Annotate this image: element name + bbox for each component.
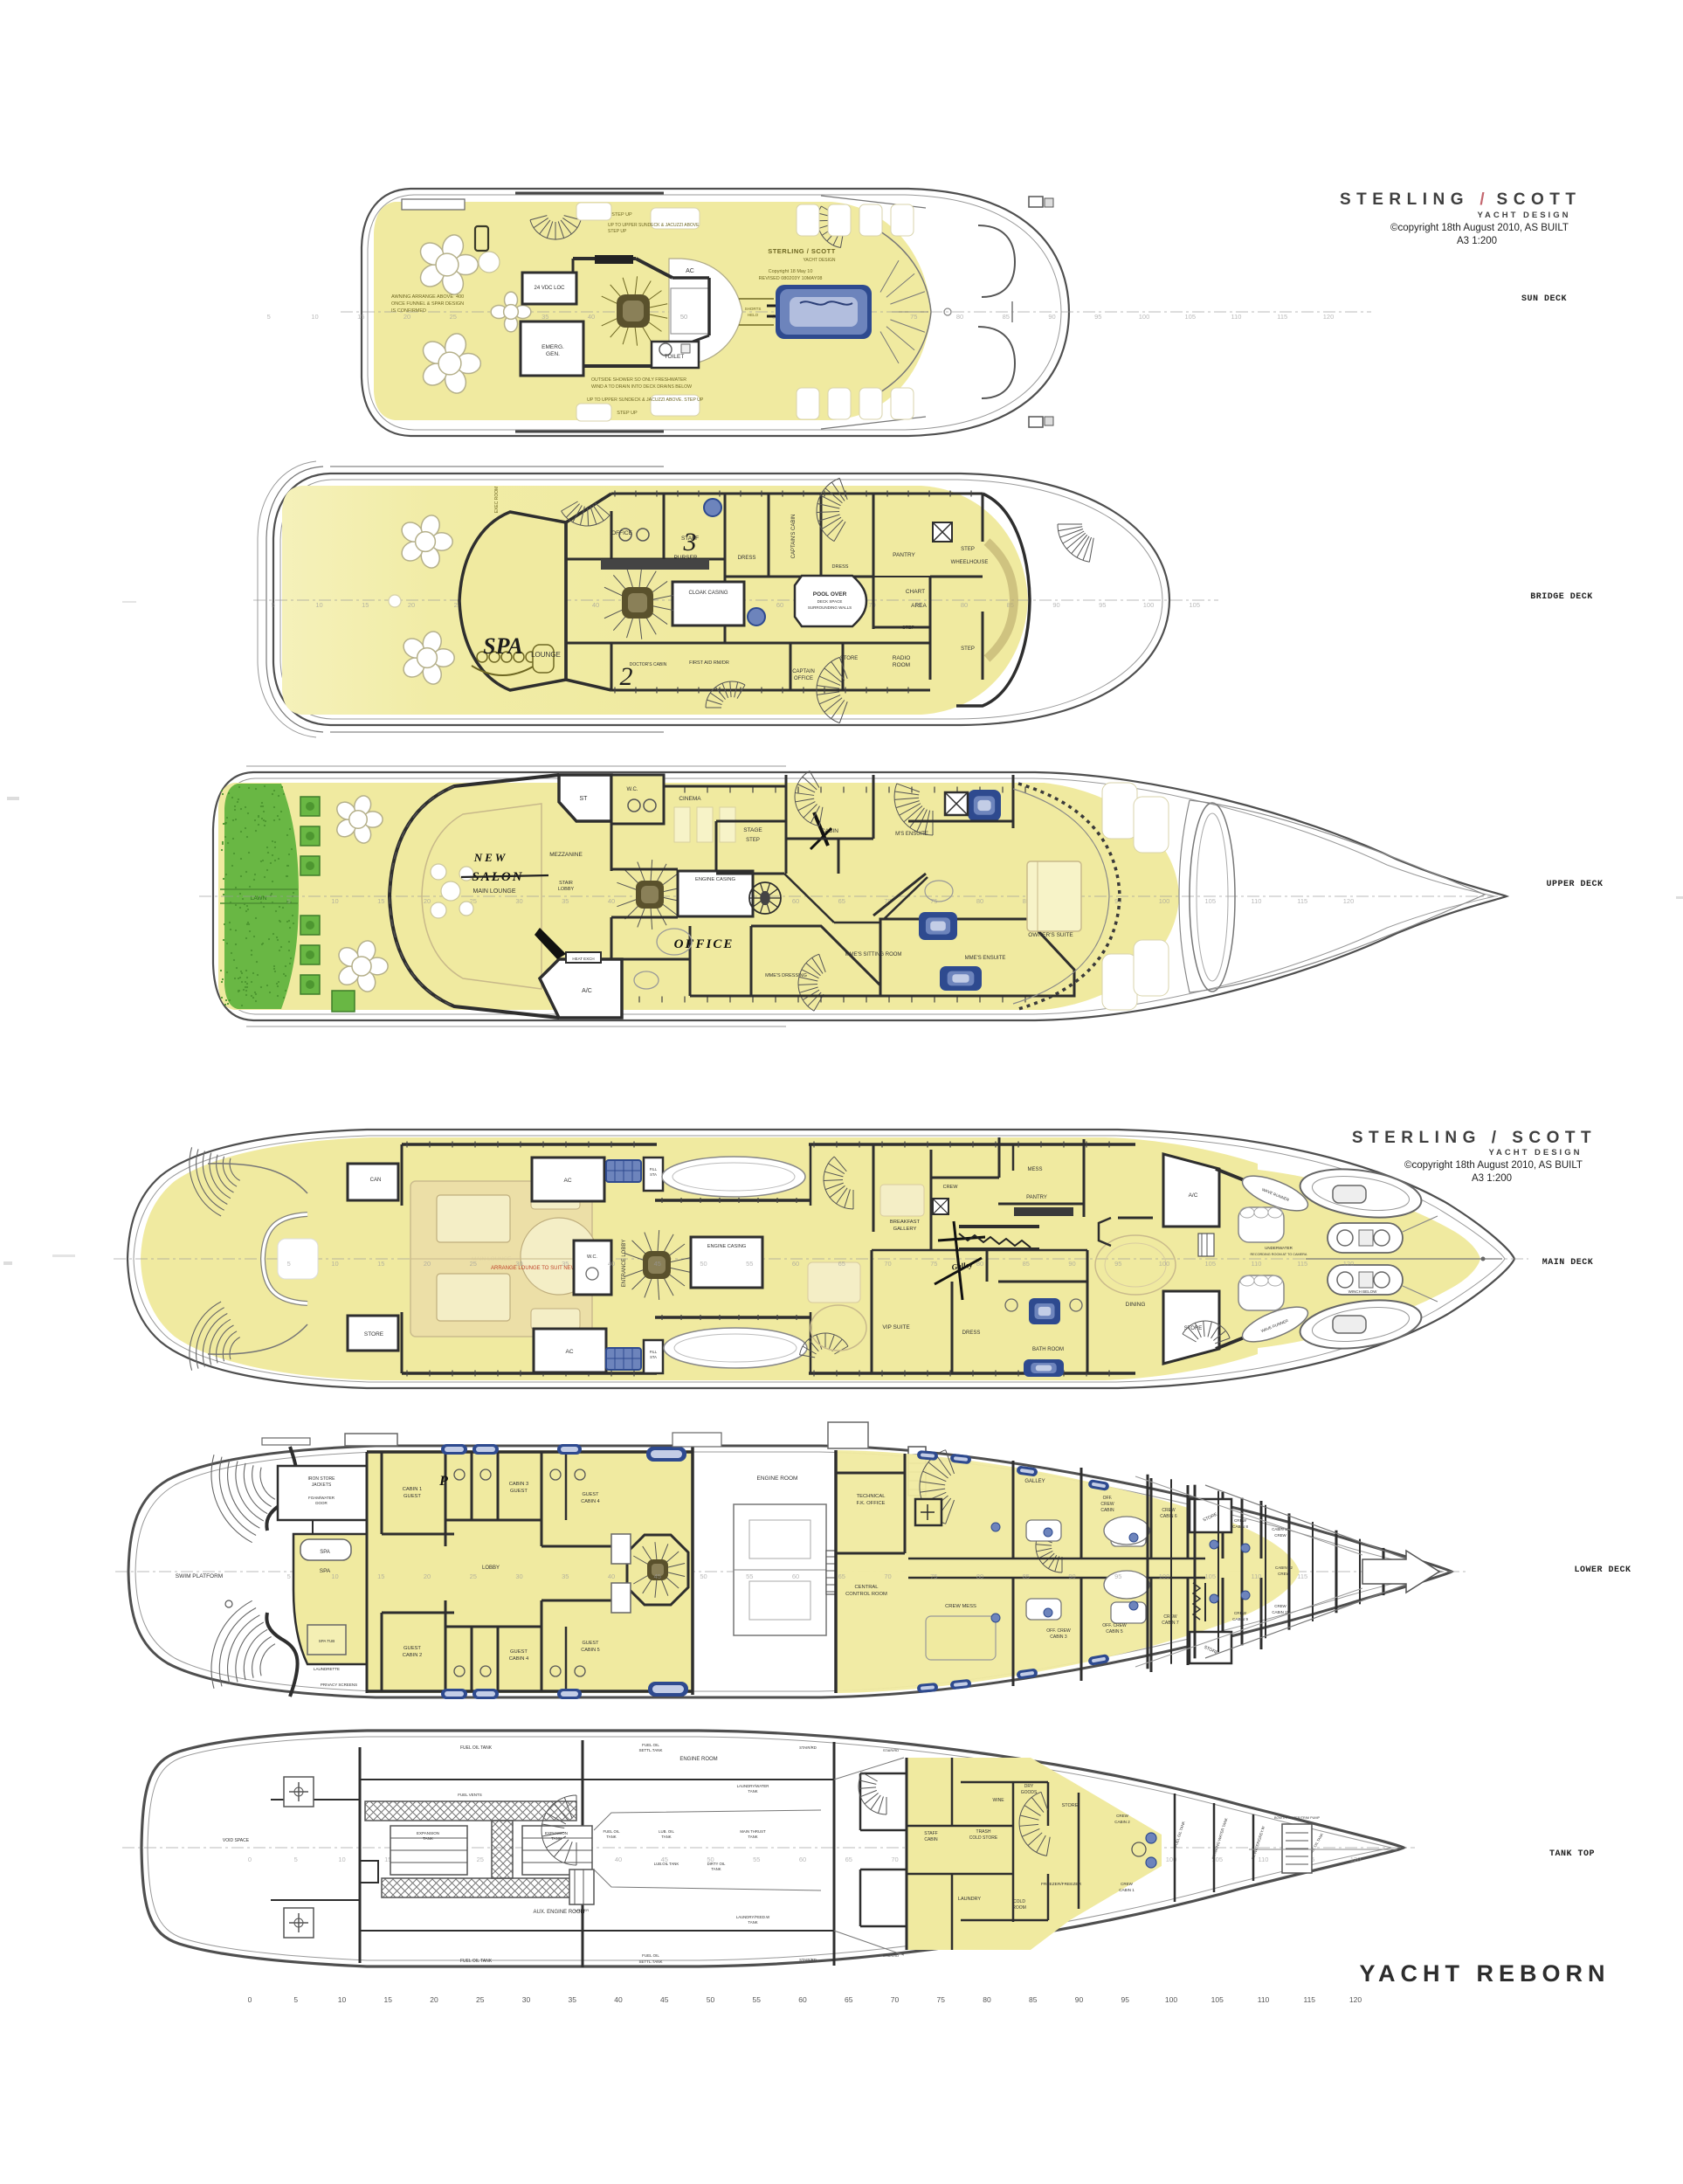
svg-text:CREW: CREW xyxy=(1100,1502,1114,1507)
svg-text:50: 50 xyxy=(707,1995,715,2004)
svg-text:CREW: CREW xyxy=(1234,1518,1247,1523)
svg-text:115: 115 xyxy=(1303,1995,1315,2004)
svg-text:DECK SPACE: DECK SPACE xyxy=(817,599,843,604)
svg-text:55: 55 xyxy=(753,1995,762,2004)
svg-text:55: 55 xyxy=(753,1856,760,1863)
svg-text:MME'S SITTING ROOM: MME'S SITTING ROOM xyxy=(845,952,902,957)
svg-text:85: 85 xyxy=(1029,1995,1038,2004)
svg-text:PRIVACY SCREENS: PRIVACY SCREENS xyxy=(321,1683,357,1687)
svg-text:35: 35 xyxy=(562,1260,569,1268)
svg-text:20: 20 xyxy=(404,313,410,321)
svg-text:JACKETS: JACKETS xyxy=(312,1482,332,1488)
svg-text:GUEST: GUEST xyxy=(583,1641,600,1646)
svg-text:SCOTT: SCOTT xyxy=(1497,190,1582,209)
svg-text:DRY: DRY xyxy=(1024,1784,1034,1789)
svg-text:SPA: SPA xyxy=(483,633,523,659)
svg-text:70: 70 xyxy=(884,1572,891,1580)
svg-text:TANK: TANK xyxy=(748,1920,757,1925)
svg-text:CREW: CREW xyxy=(1162,1508,1176,1513)
svg-text:OUTSIDE SHOWER SO ONLY FRESHWA: OUTSIDE SHOWER SO ONLY FRESHWATER xyxy=(591,377,686,383)
svg-text:LAUNDRY/WATER: LAUNDRY/WATER xyxy=(737,1784,769,1788)
svg-text:CABIN: CABIN xyxy=(1100,1508,1114,1513)
svg-text:GALLERY: GALLERY xyxy=(893,1227,917,1232)
svg-text:STEP: STEP xyxy=(746,838,760,843)
svg-text:55: 55 xyxy=(746,1572,753,1580)
svg-text:80: 80 xyxy=(976,1572,983,1580)
svg-text:SETTL.TANK: SETTL.TANK xyxy=(639,1748,663,1752)
svg-text:CABIN 2: CABIN 2 xyxy=(1114,1820,1130,1824)
svg-text:CREW: CREW xyxy=(1116,1814,1129,1818)
svg-text:80: 80 xyxy=(956,313,963,321)
svg-text:GOODS: GOODS xyxy=(1021,1790,1038,1795)
svg-text:20: 20 xyxy=(424,1572,431,1580)
svg-text:GUEST: GUEST xyxy=(510,1649,528,1655)
svg-text:YACHT DESIGN: YACHT DESIGN xyxy=(1489,1148,1583,1158)
svg-text:BATH ROOM: BATH ROOM xyxy=(1032,1347,1064,1352)
svg-text:CHART: CHART xyxy=(906,589,925,595)
svg-text:90: 90 xyxy=(1052,601,1059,609)
svg-text:YACHT DESIGN: YACHT DESIGN xyxy=(1478,211,1571,220)
svg-text:105: 105 xyxy=(1189,601,1200,609)
svg-text:SURROUNDING WALLS: SURROUNDING WALLS xyxy=(808,605,852,610)
svg-text:75: 75 xyxy=(910,313,917,321)
svg-text:GUEST: GUEST xyxy=(583,1492,600,1497)
svg-text:OFF. CREW: OFF. CREW xyxy=(1046,1628,1071,1634)
svg-text:15: 15 xyxy=(377,897,384,905)
svg-text:SUN DECK: SUN DECK xyxy=(1521,294,1567,304)
svg-text:95: 95 xyxy=(1121,1995,1130,2004)
svg-text:FOAM/WATER: FOAM/WATER xyxy=(308,1496,335,1500)
svg-text:CABIN 1: CABIN 1 xyxy=(403,1487,423,1492)
svg-text:GUEST: GUEST xyxy=(404,1494,421,1499)
svg-text:UP TO UPPER SUNDECK & JACUZZI: UP TO UPPER SUNDECK & JACUZZI ABOVE xyxy=(608,223,700,228)
svg-text:24 VDC LOC: 24 VDC LOC xyxy=(534,286,565,291)
svg-text:5: 5 xyxy=(293,1995,298,2004)
svg-text:SPA TUB: SPA TUB xyxy=(319,1639,335,1643)
svg-text:65: 65 xyxy=(845,1856,852,1863)
svg-text:75: 75 xyxy=(930,1260,937,1268)
svg-text:45: 45 xyxy=(660,1995,669,2004)
svg-text:TANK TOP: TANK TOP xyxy=(1549,1849,1595,1859)
svg-text:3: 3 xyxy=(683,528,697,556)
svg-text:RECORDING ROOM AT TO CAMERA: RECORDING ROOM AT TO CAMERA xyxy=(1251,1253,1307,1256)
svg-text:A3 1:200: A3 1:200 xyxy=(1457,236,1497,246)
svg-text:CABIN 9: CABIN 9 xyxy=(1232,1617,1248,1621)
svg-text:WHEELHOUSE: WHEELHOUSE xyxy=(951,560,989,565)
svg-text:65: 65 xyxy=(838,1572,845,1580)
svg-text:HEAT EXCH: HEAT EXCH xyxy=(572,957,594,961)
svg-text:TANK: TANK xyxy=(711,1867,721,1871)
svg-text:STAIR/RD: STAIR/RD xyxy=(883,1748,899,1752)
svg-text:TOILET: TOILET xyxy=(665,354,685,360)
svg-text:STA: STA xyxy=(650,1355,657,1359)
svg-text:ROOM: ROOM xyxy=(1012,1905,1026,1911)
svg-text:PANTRY: PANTRY xyxy=(1026,1195,1047,1200)
svg-text:5: 5 xyxy=(267,313,271,321)
svg-text:VOID SPACE: VOID SPACE xyxy=(223,1838,250,1843)
svg-text:40: 40 xyxy=(608,1572,615,1580)
svg-text:20: 20 xyxy=(408,601,415,609)
svg-text:CABIN 4: CABIN 4 xyxy=(509,1656,529,1662)
svg-text:105: 105 xyxy=(1184,313,1196,321)
svg-text:CLOAK CASING: CLOAK CASING xyxy=(688,591,728,596)
svg-text:10: 10 xyxy=(315,601,322,609)
svg-text:PURSER: PURSER xyxy=(673,555,697,561)
svg-text:P: P xyxy=(438,1474,448,1489)
svg-text:SETTL.TANK: SETTL.TANK xyxy=(639,1959,663,1964)
svg-text:70: 70 xyxy=(884,1260,891,1268)
svg-text:115: 115 xyxy=(1297,1572,1307,1580)
svg-text:ENGINE ROOM: ENGINE ROOM xyxy=(757,1476,798,1482)
svg-text:30: 30 xyxy=(515,897,522,905)
svg-text:5: 5 xyxy=(287,1572,291,1580)
svg-text:CENTRAL: CENTRAL xyxy=(854,1585,879,1590)
svg-text:10: 10 xyxy=(331,897,338,905)
svg-text:AWNING ARRANGE ABOVE 400: AWNING ARRANGE ABOVE 400 xyxy=(391,294,464,300)
svg-text:W.C.: W.C. xyxy=(587,1254,597,1260)
svg-text:100: 100 xyxy=(1165,1995,1177,2004)
svg-text:STEP UP: STEP UP xyxy=(608,229,627,234)
svg-text:15: 15 xyxy=(362,601,369,609)
svg-text:LOBBY: LOBBY xyxy=(482,1565,500,1571)
svg-text:GEN.: GEN. xyxy=(546,351,560,357)
svg-text:SPA: SPA xyxy=(320,1550,330,1555)
svg-text:65: 65 xyxy=(838,1260,845,1268)
svg-text:A3 1:200: A3 1:200 xyxy=(1472,1173,1512,1184)
svg-text:ENGINE ROOM: ENGINE ROOM xyxy=(679,1757,717,1762)
svg-text:AC: AC xyxy=(686,268,694,274)
svg-text:STEP: STEP xyxy=(961,547,975,552)
svg-text:5: 5 xyxy=(287,897,291,905)
svg-text:YACHT REBORN: YACHT REBORN xyxy=(1359,1960,1610,1987)
svg-text:60: 60 xyxy=(798,1995,807,2004)
svg-text:CABIN 4: CABIN 4 xyxy=(581,1499,599,1504)
svg-text:FILL: FILL xyxy=(650,1167,658,1171)
svg-text:FILL: FILL xyxy=(650,1350,658,1354)
svg-text:OFFICE: OFFICE xyxy=(794,676,813,681)
svg-text:15: 15 xyxy=(357,313,364,321)
svg-text:120: 120 xyxy=(1343,1260,1355,1268)
svg-text:COLD: COLD xyxy=(1013,1899,1025,1904)
svg-text:65: 65 xyxy=(845,1995,853,2004)
svg-text:105: 105 xyxy=(1204,1260,1216,1268)
svg-text:65: 65 xyxy=(838,897,845,905)
svg-text:STERLING: STERLING xyxy=(1340,190,1469,209)
svg-text:FUEL OIL TANK: FUEL OIL TANK xyxy=(460,1745,493,1751)
svg-text:CABIN 5: CABIN 5 xyxy=(581,1648,599,1653)
svg-text:115: 115 xyxy=(1297,897,1307,905)
svg-text:55: 55 xyxy=(746,1260,753,1268)
svg-text:ENGINE CASING: ENGINE CASING xyxy=(695,877,736,882)
svg-text:F.K. OFFICE: F.K. OFFICE xyxy=(857,1501,886,1506)
svg-text:LOUNGE: LOUNGE xyxy=(531,651,561,659)
svg-text:SHORTS: SHORTS xyxy=(745,307,762,311)
svg-text:80: 80 xyxy=(976,1260,983,1268)
svg-text:POOL OVER: POOL OVER xyxy=(813,591,847,598)
svg-text:M'S ENSUITE: M'S ENSUITE xyxy=(895,832,928,837)
svg-text:60: 60 xyxy=(799,1856,806,1863)
svg-text:STAGE: STAGE xyxy=(743,827,762,833)
svg-text:CABIN 1: CABIN 1 xyxy=(1119,1888,1135,1892)
svg-text:CAPTAIN: CAPTAIN xyxy=(792,669,815,674)
svg-text:ST: ST xyxy=(580,796,589,802)
svg-text:75: 75 xyxy=(937,1995,946,2004)
svg-text:MAIN THRUST: MAIN THRUST xyxy=(740,1829,766,1834)
svg-text:STEP: STEP xyxy=(902,625,915,631)
svg-text:CABIN 5: CABIN 5 xyxy=(1106,1629,1123,1635)
svg-text:CREW: CREW xyxy=(943,1185,959,1190)
svg-text:105: 105 xyxy=(1204,897,1216,905)
svg-text:70: 70 xyxy=(891,1995,900,2004)
svg-text:25: 25 xyxy=(476,1995,485,2004)
svg-text:95: 95 xyxy=(1099,601,1106,609)
svg-text:40: 40 xyxy=(588,313,595,321)
svg-text:/: / xyxy=(1480,190,1485,209)
svg-text:100: 100 xyxy=(1159,1260,1170,1268)
svg-text:35: 35 xyxy=(562,1572,569,1580)
svg-text:15: 15 xyxy=(384,1995,393,2004)
svg-text:100: 100 xyxy=(1159,1572,1170,1580)
svg-text:ENGINE CASING: ENGINE CASING xyxy=(707,1244,746,1249)
svg-text:Copyright 18 May 10: Copyright 18 May 10 xyxy=(769,269,813,274)
svg-text:CABIN 6: CABIN 6 xyxy=(1160,1514,1177,1519)
svg-text:STORE: STORE xyxy=(1062,1803,1079,1808)
svg-text:110: 110 xyxy=(1258,1995,1270,2004)
svg-text:120: 120 xyxy=(1343,897,1355,905)
svg-text:40: 40 xyxy=(614,1995,623,2004)
svg-text:STERLING / SCOTT: STERLING / SCOTT xyxy=(768,247,836,255)
svg-text:LAUNDRY: LAUNDRY xyxy=(958,1897,982,1902)
svg-text:©copyright 18th August 2010, A: ©copyright 18th August 2010, AS BUILT xyxy=(1390,223,1569,233)
svg-text:LAUNDRY/FEED.W: LAUNDRY/FEED.W xyxy=(736,1915,770,1919)
svg-text:45: 45 xyxy=(654,1260,661,1268)
svg-text:60: 60 xyxy=(792,897,799,905)
svg-text:40: 40 xyxy=(615,1856,622,1863)
svg-text:40: 40 xyxy=(608,1260,615,1268)
svg-text:45: 45 xyxy=(654,1572,661,1580)
svg-text:STORE: STORE xyxy=(364,1331,384,1337)
svg-text:TECHNICAL: TECHNICAL xyxy=(857,1494,886,1499)
svg-text:GUEST: GUEST xyxy=(404,1646,421,1651)
svg-text:STAFF: STAFF xyxy=(924,1831,937,1836)
svg-text:90: 90 xyxy=(1075,1995,1084,2004)
svg-text:CREW: CREW xyxy=(1121,1882,1134,1886)
svg-text:FUEL VENTS: FUEL VENTS xyxy=(458,1793,482,1797)
svg-text:110: 110 xyxy=(1252,1572,1262,1580)
svg-text:85: 85 xyxy=(1023,1260,1030,1268)
svg-text:DOOR: DOOR xyxy=(315,1501,328,1505)
svg-text:AC: AC xyxy=(563,1178,571,1184)
svg-text:50: 50 xyxy=(680,313,687,321)
svg-text:80: 80 xyxy=(983,1995,991,2004)
svg-text:30: 30 xyxy=(522,1995,531,2004)
svg-text:100: 100 xyxy=(1159,897,1170,905)
svg-text:CREW: CREW xyxy=(1274,1533,1286,1538)
svg-text:10: 10 xyxy=(338,1995,347,2004)
svg-text:TANK: TANK xyxy=(748,1789,757,1794)
svg-text:115: 115 xyxy=(1297,1260,1307,1268)
svg-text:DINING: DINING xyxy=(1126,1302,1146,1308)
svg-text:25: 25 xyxy=(477,1856,484,1863)
svg-text:ONCE FUNNEL & SPAR DESIGN: ONCE FUNNEL & SPAR DESIGN xyxy=(391,301,464,307)
svg-text:PANTRY: PANTRY xyxy=(893,552,915,558)
svg-text:LAUNDRETTE: LAUNDRETTE xyxy=(314,1667,340,1671)
svg-text:A/C: A/C xyxy=(582,988,592,994)
svg-text:TRASH: TRASH xyxy=(976,1829,991,1835)
svg-text:REVISED 080203Y 10MAY08: REVISED 080203Y 10MAY08 xyxy=(759,276,823,281)
svg-text:20: 20 xyxy=(424,897,431,905)
svg-text:CABIN 8: CABIN 8 xyxy=(1232,1524,1248,1529)
svg-text:DRESS: DRESS xyxy=(832,564,849,570)
svg-text:GALLEY: GALLEY xyxy=(1024,1479,1045,1484)
svg-text:85: 85 xyxy=(1023,1572,1030,1580)
svg-text:UPPER DECK: UPPER DECK xyxy=(1546,880,1603,889)
svg-text:UNDERWATER: UNDERWATER xyxy=(1265,1246,1293,1250)
svg-text:FUEL OIL TANK: FUEL OIL TANK xyxy=(460,1959,493,1964)
svg-text:30: 30 xyxy=(515,1572,522,1580)
svg-text:85: 85 xyxy=(1003,313,1010,321)
svg-text:BRIDGE DECK: BRIDGE DECK xyxy=(1530,592,1593,602)
svg-text:CINEMA: CINEMA xyxy=(679,796,701,802)
svg-text:STORE: STORE xyxy=(840,656,859,661)
svg-text:90: 90 xyxy=(1068,1260,1075,1268)
svg-text:100: 100 xyxy=(1139,313,1150,321)
svg-text:GUEST: GUEST xyxy=(510,1489,528,1494)
svg-text:CAN: CAN xyxy=(370,1178,382,1183)
svg-text:FIRST AID RM/DR: FIRST AID RM/DR xyxy=(689,660,729,666)
svg-text:OWNER'S SUITE: OWNER'S SUITE xyxy=(1028,932,1073,938)
svg-text:LUB.OIL TANK: LUB.OIL TANK xyxy=(654,1862,679,1866)
svg-text:LOBBY: LOBBY xyxy=(558,887,575,892)
svg-text:STEP UP: STEP UP xyxy=(611,212,632,218)
svg-text:STAIR/RD: STAIR/RD xyxy=(799,1745,817,1750)
svg-text:EMERG.: EMERG. xyxy=(541,344,564,350)
svg-text:TANK: TANK xyxy=(606,1835,616,1839)
svg-text:NEW: NEW xyxy=(473,851,508,864)
svg-text:0: 0 xyxy=(248,1995,252,2004)
svg-text:STAIR/RD: STAIR/RD xyxy=(799,1958,817,1962)
svg-text:25: 25 xyxy=(470,1572,477,1580)
svg-text:YACHT DESIGN: YACHT DESIGN xyxy=(803,258,835,263)
svg-text:MESS: MESS xyxy=(1027,1167,1042,1172)
svg-text:OFF.: OFF. xyxy=(1103,1496,1113,1501)
svg-text:OFFICE: OFFICE xyxy=(611,530,632,536)
svg-text:CONTROL ROOM: CONTROL ROOM xyxy=(845,1592,887,1597)
svg-text:120: 120 xyxy=(1349,1995,1362,2004)
svg-text:CREW MESS: CREW MESS xyxy=(945,1604,976,1609)
svg-text:CABIN 2: CABIN 2 xyxy=(403,1653,423,1658)
svg-text:5: 5 xyxy=(294,1856,298,1863)
svg-text:FREEZER/FREEZER: FREEZER/FREEZER xyxy=(1041,1882,1082,1887)
svg-text:IRON STORE: IRON STORE xyxy=(307,1476,335,1482)
svg-text:EXEC ROOM: EXEC ROOM xyxy=(494,487,500,514)
svg-text:90: 90 xyxy=(1048,313,1055,321)
svg-text:STA: STA xyxy=(650,1172,657,1177)
svg-text:VIP SUITE: VIP SUITE xyxy=(882,1324,910,1330)
svg-text:90: 90 xyxy=(1068,1572,1075,1580)
svg-text:STAIR/RD: STAIR/RD xyxy=(883,1953,899,1958)
svg-text:50: 50 xyxy=(700,1572,707,1580)
svg-text:SWIM PLATFORM: SWIM PLATFORM xyxy=(176,1573,223,1579)
svg-text:DRESS: DRESS xyxy=(738,556,756,561)
svg-text:105: 105 xyxy=(1204,1572,1216,1580)
svg-text:25: 25 xyxy=(470,1260,477,1268)
svg-text:ROOM: ROOM xyxy=(893,662,910,668)
svg-text:FUEL OIL: FUEL OIL xyxy=(604,1829,621,1834)
svg-text:80: 80 xyxy=(976,897,983,905)
svg-text:10: 10 xyxy=(338,1856,345,1863)
svg-text:75: 75 xyxy=(930,1572,937,1580)
svg-text:35: 35 xyxy=(569,1995,577,2004)
svg-text:120: 120 xyxy=(1323,313,1335,321)
svg-text:110: 110 xyxy=(1252,897,1262,905)
svg-text:IS CONFIRMED: IS CONFIRMED xyxy=(391,308,426,314)
svg-text:0: 0 xyxy=(248,1856,252,1863)
svg-text:80: 80 xyxy=(961,601,968,609)
svg-text:TANK: TANK xyxy=(661,1835,671,1839)
svg-text:10: 10 xyxy=(331,1572,338,1580)
svg-text:AC: AC xyxy=(565,1349,573,1355)
svg-text:40: 40 xyxy=(608,897,615,905)
svg-text:AREA: AREA xyxy=(911,603,927,609)
svg-text:CABIN 11: CABIN 11 xyxy=(1272,1610,1289,1614)
svg-text:DOCTOR'S CABIN: DOCTOR'S CABIN xyxy=(630,662,667,667)
svg-text:COLD STORE: COLD STORE xyxy=(969,1835,998,1841)
svg-text:10: 10 xyxy=(331,1260,338,1268)
svg-text:100: 100 xyxy=(1143,601,1155,609)
svg-text:W.C.: W.C. xyxy=(627,787,638,792)
svg-text:10: 10 xyxy=(311,313,318,321)
svg-text:BOWTHRUSTER/TRIM PUMP: BOWTHRUSTER/TRIM PUMP xyxy=(1274,1816,1321,1820)
svg-text:FUEL OIL: FUEL OIL xyxy=(642,1743,659,1747)
svg-text:A/C: A/C xyxy=(1189,1192,1198,1199)
svg-text:WIND A TO DRAIN INTO DECK DRAI: WIND A TO DRAIN INTO DECK DRAINS BELOW xyxy=(591,384,692,390)
svg-text:MAIN DECK: MAIN DECK xyxy=(1542,1258,1594,1268)
svg-text:MAIN LOUNGE: MAIN LOUNGE xyxy=(472,888,515,895)
svg-text:LADDER: LADDER xyxy=(575,1908,589,1912)
svg-text:CABIN: CABIN xyxy=(924,1837,938,1842)
svg-text:OFF. CREW: OFF. CREW xyxy=(1102,1623,1127,1628)
svg-text:CREW: CREW xyxy=(1274,1604,1286,1608)
svg-text:40: 40 xyxy=(592,601,599,609)
svg-text:120: 120 xyxy=(1350,1856,1362,1863)
svg-text:20: 20 xyxy=(424,1260,431,1268)
svg-text:STAFF: STAFF xyxy=(681,536,699,542)
svg-text:35: 35 xyxy=(562,897,569,905)
svg-text:15: 15 xyxy=(377,1572,384,1580)
svg-text:STAIR: STAIR xyxy=(559,881,573,886)
svg-text:OFFICE: OFFICE xyxy=(674,937,735,951)
svg-text:FUEL OIL: FUEL OIL xyxy=(642,1953,659,1958)
svg-text:DRESS: DRESS xyxy=(962,1330,981,1336)
svg-text:LOWER DECK: LOWER DECK xyxy=(1574,1565,1631,1575)
svg-text:ENTRANCE LOBBY: ENTRANCE LOBBY xyxy=(622,1240,627,1288)
svg-text:115: 115 xyxy=(1277,313,1287,321)
svg-text:RADIO: RADIO xyxy=(893,655,911,661)
svg-text:105: 105 xyxy=(1211,1995,1224,2004)
svg-text:STERLING / SCOTT: STERLING / SCOTT xyxy=(1352,1129,1597,1147)
svg-text:70: 70 xyxy=(891,1856,898,1863)
svg-text:30: 30 xyxy=(515,1260,522,1268)
svg-text:95: 95 xyxy=(1114,1260,1121,1268)
svg-text:CREW: CREW xyxy=(1234,1611,1247,1615)
svg-text:35: 35 xyxy=(541,313,548,321)
svg-text:15: 15 xyxy=(377,1260,384,1268)
svg-text:TANK: TANK xyxy=(748,1835,757,1839)
svg-text:25: 25 xyxy=(450,313,457,321)
svg-text:HELO: HELO xyxy=(748,313,759,317)
svg-text:60: 60 xyxy=(792,1260,799,1268)
